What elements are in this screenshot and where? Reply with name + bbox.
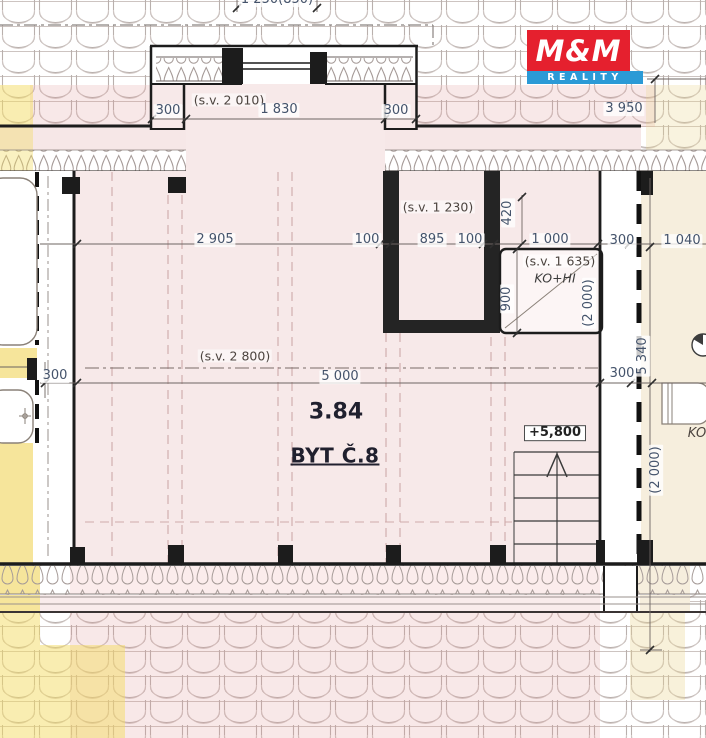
dim-2905: 2 905 [194,233,235,247]
label-sv-2010: (s.v. 2 010) [192,93,266,106]
dim-5000: 5 000 [319,370,360,384]
label-ko-hi: KO+HI [532,271,577,284]
dim-100-a: 100 [353,233,382,247]
dim-100-b: 100 [456,233,485,247]
logo-wordmark: M&M [527,30,630,71]
dim-cut-top: 1 250(850) [239,0,315,7]
dim-1000: 1 000 [529,233,570,247]
dim-300-dormer-left: 300 [154,104,183,118]
room-label-ko: KO [688,427,706,441]
floor-plan-page: 1 250(850) 3 950 (s.v. 2 010) 300 1 830 … [0,0,706,738]
dim-5340: 5 340 [636,335,650,376]
dim-300-dormer-right: 300 [382,104,411,118]
dim-420: 420 [501,199,515,228]
dim-300-top-right: 300 [608,234,637,248]
right-room-floor [641,171,706,565]
label-sv-2800: (s.v. 2 800) [198,349,272,362]
level-label: +5,800 [524,425,586,441]
alcove-passage [186,127,385,171]
label-sv-1230: (s.v. 1 230) [401,200,475,213]
mm-reality-logo: M&M REALITY [527,30,643,84]
dim-3950: 3 950 [603,102,644,116]
stair-opening [604,566,637,612]
dim-300-left: 300 [41,369,70,383]
area-value: 3.84 [309,400,363,423]
counter-wall-post [27,358,37,380]
dim-300-mid-right: 300 [608,367,637,381]
dim-2000-shaft: (2 000) [582,277,596,328]
bathtub [0,178,37,345]
logo-tagline: REALITY [527,71,643,84]
bathroom-yellow-zone [0,443,33,565]
dim-1040: 1 040 [661,234,702,248]
sink [0,390,33,443]
dim-2000-right: (2 000) [649,444,663,495]
dim-895: 895 [418,233,447,247]
dim-900: 900 [500,285,514,314]
unit-label: BYT Č.8 [291,446,380,467]
label-sv-1635: (s.v. 1 635) [523,254,597,267]
dim-1830: 1 830 [258,103,299,117]
toilet [662,383,706,424]
